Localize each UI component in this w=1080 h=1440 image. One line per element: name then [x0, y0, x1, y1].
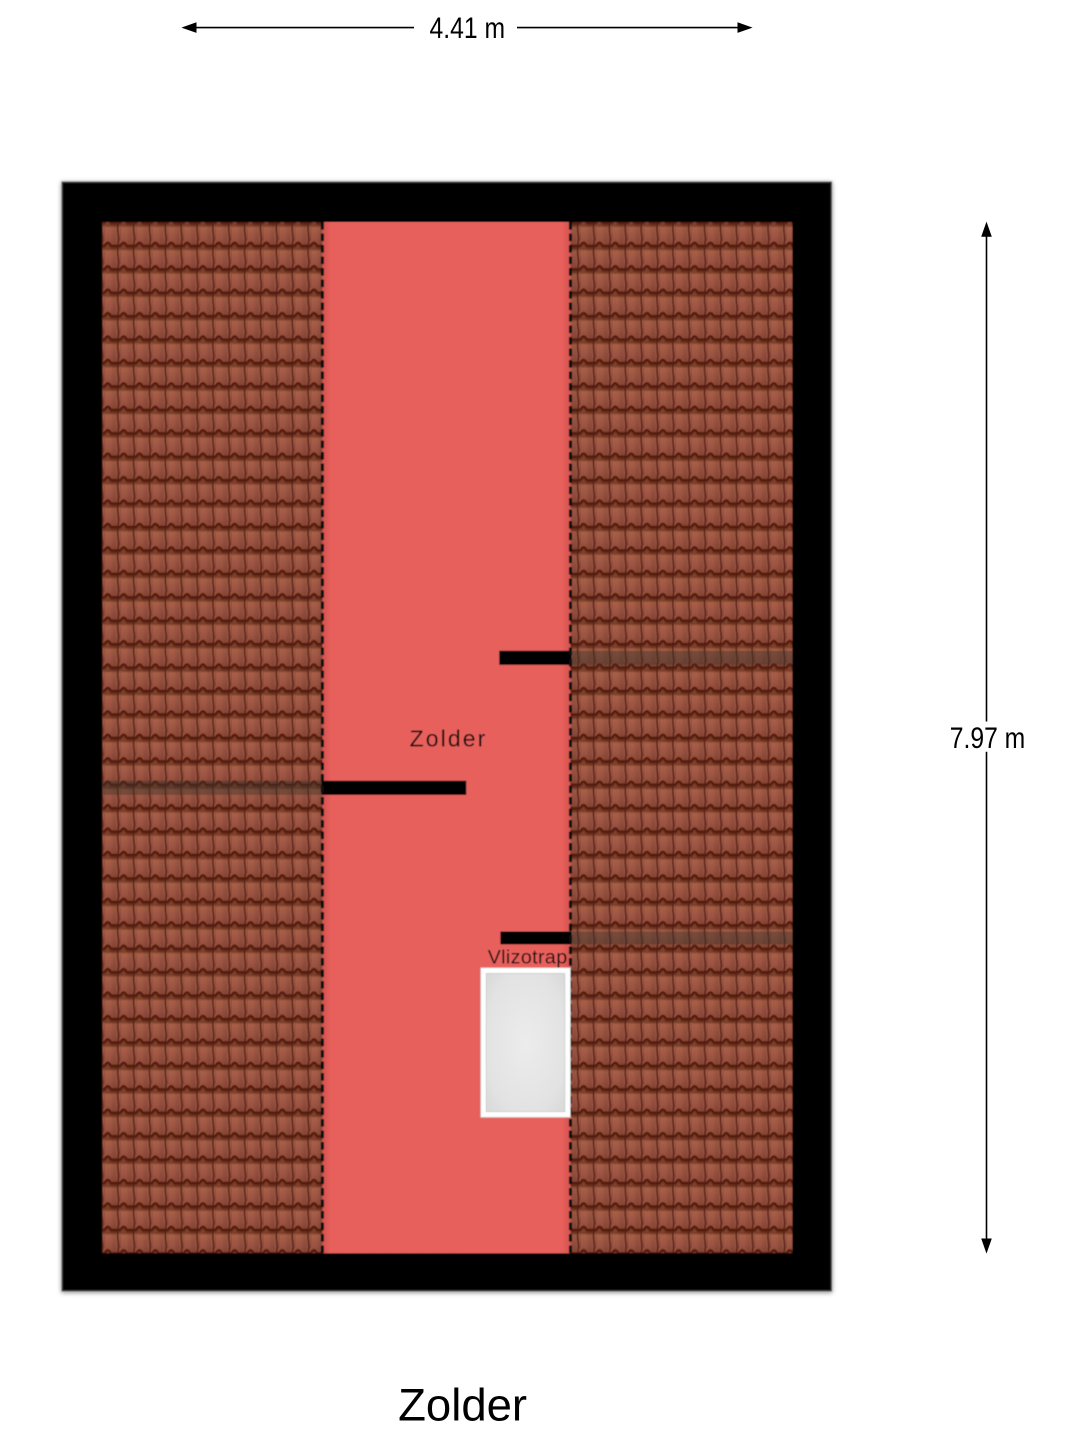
svg-text:Zolder: Zolder	[398, 1380, 527, 1431]
svg-text:Zolder: Zolder	[410, 725, 488, 751]
svg-text:4.41 m: 4.41 m	[430, 12, 506, 45]
svg-text:7.97 m: 7.97 m	[950, 722, 1026, 755]
svg-text:Vlizotrap: Vlizotrap	[488, 947, 568, 969]
